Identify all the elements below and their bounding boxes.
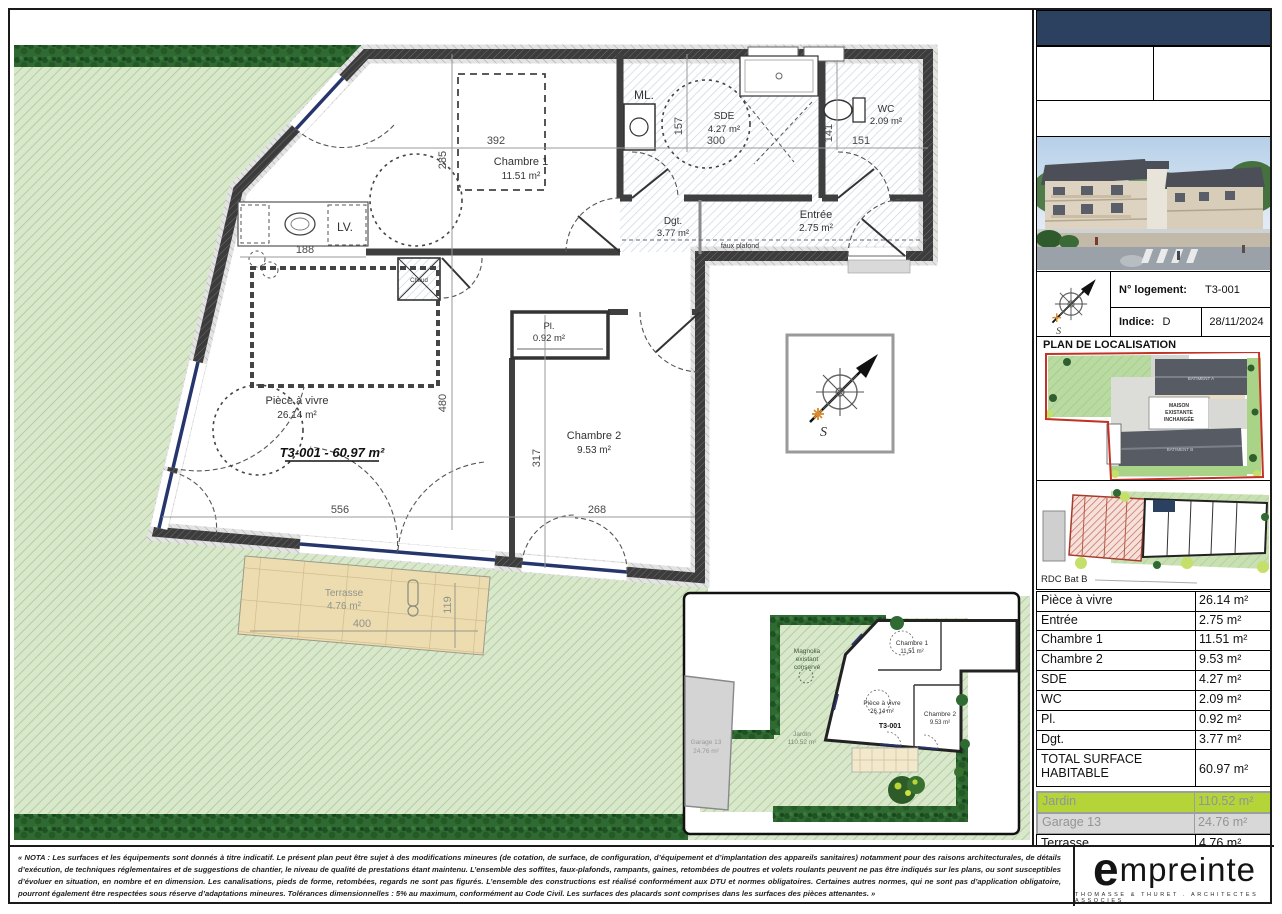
table-row-garage: Garage 1324.76 m² [1036, 812, 1272, 835]
inset-chambre2-area: 9.53 m² [930, 720, 950, 726]
inset-garden-plan: Garage 13 24.76 m² Magnolia existant con… [684, 593, 1019, 834]
lv-label: LV. [337, 220, 353, 234]
table-row-total: TOTAL SURFACE HABITABLE60.97 m² [1036, 749, 1272, 787]
table-row-jardin: Jardin110.52 m² [1036, 791, 1272, 814]
dim-300: 300 [707, 135, 725, 147]
render-image [1036, 136, 1272, 272]
row-value: 0.92 m² [1196, 711, 1271, 730]
dim-141: 141 [823, 124, 835, 142]
maison-line1: MAISON [1169, 403, 1189, 409]
water-heater-closet: Chaud [398, 258, 440, 300]
inset-chambre1-area: 11.51 m² [900, 649, 923, 655]
pl-area: 0.92 m² [533, 333, 565, 344]
chambre2-area: 9.53 m² [577, 445, 612, 456]
logement-row: N° logement: T3-001 [1110, 271, 1272, 309]
maison-line3: INCHANGÉE [1164, 415, 1195, 423]
inset-piece-area: 26.14 m² [870, 709, 894, 715]
logo-subtitle: THOMASSE & THURET . ARCHITECTES ASSOCIES [1075, 892, 1274, 904]
garage-value: 24.76 m² [1195, 814, 1270, 833]
panel-header-band [1036, 10, 1272, 46]
row-label: Pl. [1037, 711, 1196, 730]
entry-landing [848, 260, 910, 273]
date-value: 28/11/2024 [1209, 316, 1263, 328]
row-label: WC [1037, 691, 1196, 710]
nota-cell: « NOTA : Les surfaces et les équipements… [8, 847, 1075, 906]
panel-empty-cell-3 [1036, 100, 1272, 137]
terrasse-label: Terrasse [325, 588, 364, 599]
piece-a-vivre-label: Pièce à vivre [266, 395, 329, 407]
row-value: 2.75 m² [1196, 612, 1271, 631]
dim-188: 188 [296, 244, 314, 256]
maison-line2: EXISTANTE [1165, 410, 1193, 416]
table-row: Chambre 29.53 m² [1036, 650, 1272, 671]
key-plan: RDC Bat B [1037, 481, 1270, 588]
row-label: Chambre 1 [1037, 631, 1196, 650]
hedge-top [14, 45, 366, 67]
row-label: Dgt. [1037, 731, 1196, 750]
dgt-label: Dgt. [664, 216, 682, 227]
inset-jardin-label: Jardin [793, 731, 811, 738]
indice-cell: Indice: D [1110, 307, 1203, 337]
batiment-b-label: BATIMENT B [1167, 447, 1194, 452]
washer-icon [624, 104, 655, 150]
inset-piece-label: Pièce à vivre [863, 700, 901, 707]
table-row: Dgt.3.77 m² [1036, 730, 1272, 751]
garage-label: Garage 13 [1038, 814, 1195, 833]
compass-small-south: S [1056, 326, 1061, 335]
dim-268: 268 [588, 504, 606, 516]
unit-title: T3-001 - 60.97 m² [280, 445, 385, 460]
table-row: Pièce à vivre26.14 m² [1036, 591, 1272, 612]
faux-plafond-label: faux plafond [721, 243, 759, 250]
south-label: S [820, 425, 827, 440]
inset-garage-label: Garage 13 [691, 739, 722, 746]
indice-label: Indice: [1111, 316, 1154, 328]
dim-556: 556 [331, 504, 349, 516]
dim-151: 151 [852, 135, 870, 147]
panel-empty-cell-2 [1153, 46, 1272, 101]
row-value: 26.14 m² [1196, 592, 1271, 611]
row-value: 3.77 m² [1196, 731, 1271, 750]
table-row: Chambre 111.51 m² [1036, 630, 1272, 651]
logo-text: mpreinte [1120, 851, 1256, 888]
table-row: SDE4.27 m² [1036, 670, 1272, 691]
magnolia-label-2: existant [796, 656, 819, 663]
compass-main: S [787, 335, 893, 452]
inset-unit-label: T3-001 [879, 723, 901, 730]
right-panel: S N° logement: T3-001 Indice: D 28/11/20… [1032, 8, 1274, 845]
dim-400: 400 [353, 618, 371, 630]
footer: « NOTA : Les surfaces et les équipements… [8, 845, 1274, 906]
localisation-title: PLAN DE LOCALISATION [1043, 339, 1176, 351]
chambre1-area: 11.51 m² [502, 171, 541, 182]
key-plan-cell: RDC Bat B [1036, 480, 1272, 590]
chambre2-label: Chambre 2 [567, 430, 621, 442]
titleblock-compass-cell: S [1036, 271, 1111, 337]
ml-label: ML. [634, 88, 654, 102]
batiment-a-label: BATIMENT A [1188, 376, 1214, 381]
magnolia-label-3: conservé [794, 664, 821, 671]
jardin-label: Jardin [1038, 793, 1195, 812]
logement-label: N° logement: [1111, 284, 1187, 296]
row-value: 9.53 m² [1196, 651, 1271, 670]
magnolia-label-1: Magnolia [794, 648, 821, 655]
logement-value: T3-001 [1205, 284, 1240, 296]
row-label: Pièce à vivre [1037, 592, 1196, 611]
chaud-label: Chaud [410, 278, 428, 284]
nota-text: « NOTA : Les surfaces et les équipements… [18, 852, 1061, 900]
total-value: 60.97 m² [1196, 750, 1271, 786]
pl-label: Pl. [543, 321, 554, 332]
dim-157: 157 [673, 117, 685, 135]
table-row: Pl.0.92 m² [1036, 710, 1272, 731]
indice-value: D [1162, 316, 1170, 328]
key-plan-label: RDC Bat B [1041, 574, 1087, 585]
entree-area: 2.75 m² [799, 223, 834, 234]
compass-small: S [1037, 272, 1109, 335]
inset-jardin-area: 110.52 m² [788, 739, 818, 746]
shower-tray [740, 56, 818, 96]
chambre1-label: Chambre 1 [494, 156, 548, 168]
date-cell: 28/11/2024 [1201, 307, 1272, 337]
row-label: Chambre 2 [1037, 651, 1196, 670]
wc-label: WC [878, 104, 895, 115]
table-row: Entrée2.75 m² [1036, 611, 1272, 632]
floor-plan-sheet: Terrasse 4.76 m² 400 119 [0, 0, 1282, 914]
wc-area: 2.09 m² [870, 116, 902, 127]
dgt-area: 3.77 m² [657, 228, 689, 239]
inset-garage-area: 24.76 m² [693, 748, 719, 755]
terrasse-area-label: 4.76 m² [327, 601, 362, 612]
inset-chambre2-label: Chambre 2 [924, 711, 957, 718]
row-value: 11.51 m² [1196, 631, 1271, 650]
piece-a-vivre-area: 26.14 m² [277, 410, 317, 421]
site-plan: BATIMENT A MAISON EXISTANTE INCHANGÉE BA… [1037, 352, 1270, 480]
toilet-icon [824, 100, 852, 120]
row-label: Entrée [1037, 612, 1196, 631]
dim-480: 480 [437, 394, 449, 412]
render-illustration [1037, 137, 1270, 270]
dim-119: 119 [442, 596, 454, 614]
logo-cell: empreinte THOMASSE & THURET . ARCHITECTE… [1075, 847, 1274, 906]
row-value: 4.27 m² [1196, 671, 1271, 690]
sde-label: SDE [714, 111, 735, 122]
plan-localisation-cell: PLAN DE LOCALISATION BATIMENT A MAISON E… [1036, 336, 1272, 482]
panel-empty-cell-1 [1036, 46, 1154, 101]
sde-area: 4.27 m² [708, 124, 740, 135]
dim-392: 392 [487, 135, 505, 147]
entree-label: Entrée [800, 209, 832, 221]
surface-table: Pièce à vivre26.14 m² Entrée2.75 m² Cham… [1036, 592, 1272, 855]
row-value: 2.09 m² [1196, 691, 1271, 710]
inset-garage: Garage 13 24.76 m² [685, 676, 734, 810]
dim-317: 317 [531, 449, 543, 467]
table-row: WC2.09 m² [1036, 690, 1272, 711]
dim-285: 285 [437, 151, 449, 169]
row-label: SDE [1037, 671, 1196, 690]
jardin-value: 110.52 m² [1195, 793, 1270, 812]
architect-logo: empreinte [1093, 849, 1256, 890]
hedge-bottom [14, 814, 688, 840]
total-label: TOTAL SURFACE HABITABLE [1037, 750, 1196, 786]
inset-chambre1-label: Chambre 1 [896, 640, 929, 647]
